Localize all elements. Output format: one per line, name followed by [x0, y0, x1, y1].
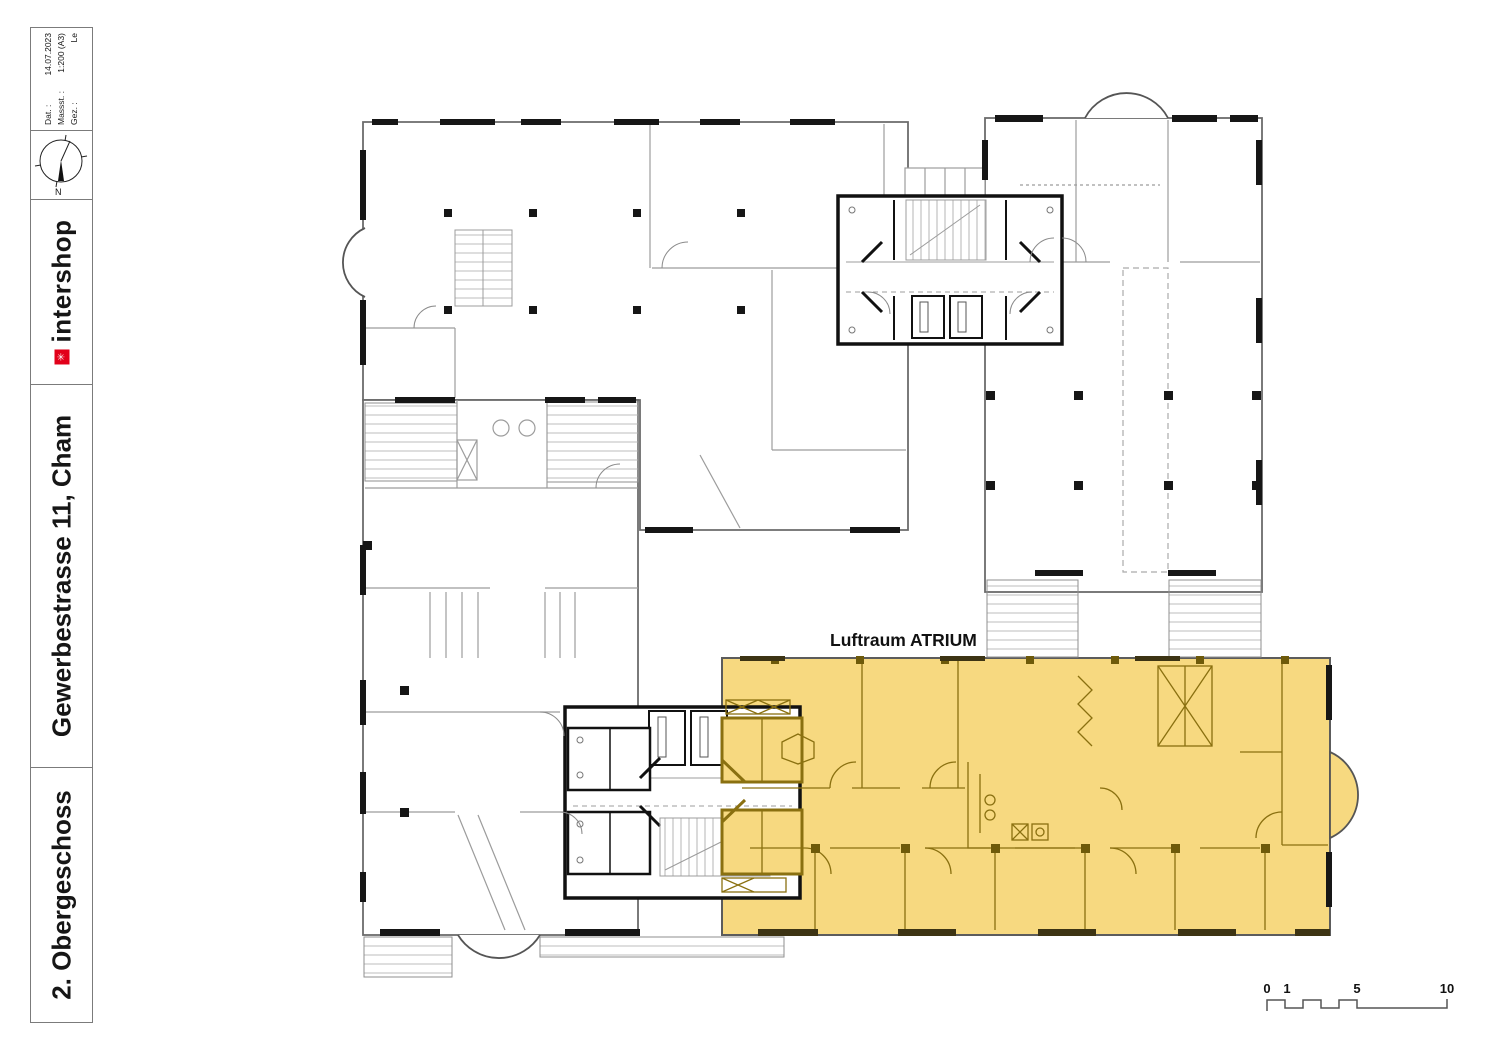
bay-east	[1330, 752, 1358, 838]
drawing-sheet: { "sheet": { "info": { "date_label": "Da…	[0, 0, 1500, 1060]
scale-tick-10: 10	[1440, 981, 1454, 996]
bay-north	[1085, 93, 1168, 118]
core-north	[838, 196, 1062, 344]
floor-plan: Luftraum ATRIUM 0 1 5 10	[0, 0, 1500, 1060]
scale-tick-1: 1	[1283, 981, 1290, 996]
bay-west	[343, 228, 365, 297]
highlight-area-atrium-wing	[722, 658, 1330, 935]
scale-bar: 0 1 5 10	[1263, 981, 1454, 1011]
atrium-label: Luftraum ATRIUM	[830, 630, 977, 650]
scale-tick-0: 0	[1263, 981, 1270, 996]
bay-south	[458, 935, 540, 958]
stair-northwest	[455, 230, 512, 306]
scale-tick-5: 5	[1353, 981, 1360, 996]
